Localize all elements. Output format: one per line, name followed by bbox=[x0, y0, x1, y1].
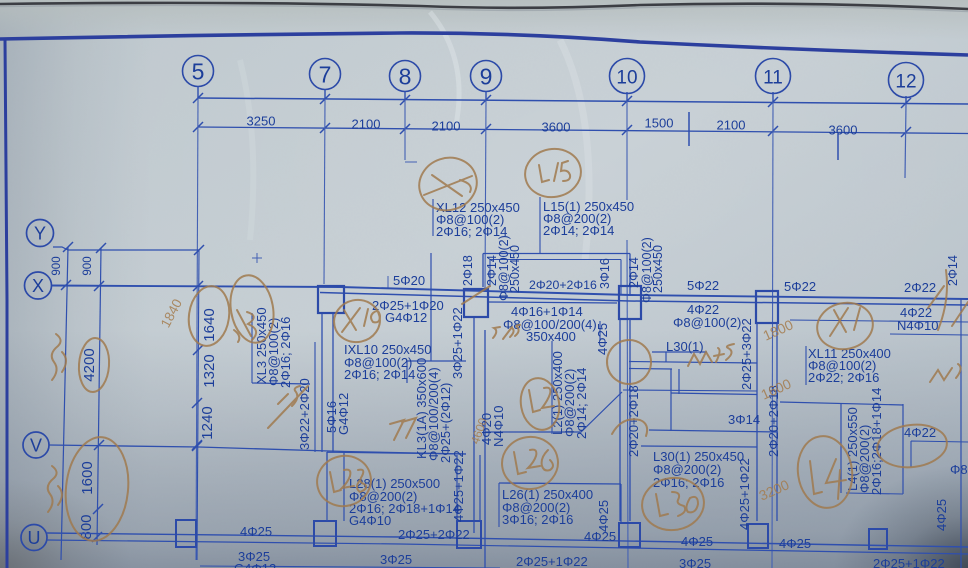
svg-text:2Φ16; 2Φ16: 2Φ16; 2Φ16 bbox=[653, 475, 724, 490]
svg-text:2Φ18: 2Φ18 bbox=[461, 255, 475, 286]
svg-text:L30(1): L30(1) bbox=[666, 339, 704, 354]
svg-text:9: 9 bbox=[480, 64, 493, 90]
svg-text:G4Φ12: G4Φ12 bbox=[336, 393, 351, 435]
svg-text:X: X bbox=[32, 276, 44, 296]
svg-text:3Φ14: 3Φ14 bbox=[728, 412, 760, 427]
svg-text:2100: 2100 bbox=[352, 117, 381, 132]
svg-text:2Φ22: 2Φ22 bbox=[904, 280, 936, 295]
svg-text:2100: 2100 bbox=[717, 118, 746, 133]
svg-text:2Φ16; 2Φ16: 2Φ16; 2Φ16 bbox=[278, 317, 293, 388]
svg-text:2Φ16;2Φ18+1Φ14: 2Φ16;2Φ18+1Φ14 bbox=[869, 388, 884, 495]
svg-text:U: U bbox=[28, 528, 41, 548]
svg-text:10: 10 bbox=[616, 68, 637, 89]
svg-text:2Φ14: 2Φ14 bbox=[946, 255, 960, 286]
svg-text:3250: 3250 bbox=[247, 114, 276, 129]
svg-text:7: 7 bbox=[319, 62, 332, 88]
svg-text:1320: 1320 bbox=[201, 354, 218, 387]
svg-text:3Φ25+1Φ22: 3Φ25+1Φ22 bbox=[450, 307, 465, 379]
svg-text:2Φ25+1Φ22: 2Φ25+1Φ22 bbox=[516, 554, 588, 568]
svg-text:4Φ25: 4Φ25 bbox=[681, 534, 713, 549]
svg-text:1500: 1500 bbox=[645, 116, 674, 131]
svg-text:1600: 1600 bbox=[79, 461, 96, 494]
svg-text:4Φ25: 4Φ25 bbox=[934, 499, 949, 531]
svg-text:3Φ25: 3Φ25 bbox=[380, 552, 412, 567]
svg-text:G4Φ12: G4Φ12 bbox=[234, 561, 276, 568]
svg-text:2Φ16; 2Φ14: 2Φ16; 2Φ14 bbox=[344, 367, 415, 382]
svg-text:G4Φ10: G4Φ10 bbox=[349, 513, 391, 528]
svg-text:2Φ14: 2Φ14 bbox=[627, 257, 641, 288]
svg-text:900: 900 bbox=[82, 256, 94, 275]
svg-text:Y: Y bbox=[34, 224, 46, 244]
svg-text:Φ8@100(2): Φ8@100(2) bbox=[673, 315, 741, 330]
svg-text:4Φ25: 4Φ25 bbox=[240, 524, 272, 539]
svg-text:5Φ22: 5Φ22 bbox=[687, 278, 719, 293]
svg-text:3600: 3600 bbox=[542, 120, 571, 135]
svg-text:4200: 4200 bbox=[81, 348, 98, 381]
svg-text:4Φ25+1Φ22: 4Φ25+1Φ22 bbox=[737, 458, 752, 530]
svg-text:3Φ16; 2Φ16: 3Φ16; 2Φ16 bbox=[502, 512, 573, 527]
svg-text:2Φ25+1Φ22: 2Φ25+1Φ22 bbox=[873, 556, 945, 568]
svg-text:3600: 3600 bbox=[829, 123, 858, 138]
svg-text:Φ8: Φ8 bbox=[950, 462, 968, 477]
svg-text:250x450: 250x450 bbox=[651, 245, 665, 293]
svg-text:N4Φ10: N4Φ10 bbox=[897, 318, 938, 333]
svg-text:5: 5 bbox=[192, 59, 205, 85]
svg-text:3Φ25: 3Φ25 bbox=[679, 556, 711, 568]
svg-text:2Φ25+2Φ22: 2Φ25+2Φ22 bbox=[398, 527, 470, 542]
svg-text:1640: 1640 bbox=[201, 308, 218, 341]
svg-text:2Φ14; 2Φ14: 2Φ14; 2Φ14 bbox=[574, 368, 589, 439]
svg-text:G4Φ12: G4Φ12 bbox=[385, 310, 427, 325]
svg-text:250x450: 250x450 bbox=[508, 245, 522, 293]
svg-text:350x400: 350x400 bbox=[526, 329, 576, 344]
svg-text:1240: 1240 bbox=[199, 406, 216, 439]
svg-text:3Φ16: 3Φ16 bbox=[598, 258, 612, 289]
svg-text:2100: 2100 bbox=[432, 119, 461, 134]
svg-text:4Φ25: 4Φ25 bbox=[779, 536, 811, 551]
svg-text:5Φ22: 5Φ22 bbox=[784, 279, 816, 294]
svg-text:4Φ25: 4Φ25 bbox=[596, 500, 611, 532]
svg-text:4Φ25: 4Φ25 bbox=[595, 323, 610, 355]
svg-text:2Φ22; 2Φ16: 2Φ22; 2Φ16 bbox=[808, 370, 879, 385]
svg-text:4Φ25+1Φ22: 4Φ25+1Φ22 bbox=[451, 450, 466, 522]
svg-text:2Φ20+2Φ16: 2Φ20+2Φ16 bbox=[529, 278, 597, 292]
svg-text:2Φ20+2Φ18: 2Φ20+2Φ18 bbox=[626, 385, 641, 457]
svg-text:2Φ25+3Φ22: 2Φ25+3Φ22 bbox=[739, 318, 754, 390]
svg-text:11: 11 bbox=[763, 68, 783, 89]
svg-text:5Φ20: 5Φ20 bbox=[393, 273, 425, 288]
svg-text:V: V bbox=[30, 436, 42, 456]
svg-text:N4Φ10: N4Φ10 bbox=[491, 406, 506, 447]
svg-text:12: 12 bbox=[895, 72, 916, 93]
svg-text:2Φ14; 2Φ14: 2Φ14; 2Φ14 bbox=[543, 223, 614, 238]
svg-text:8: 8 bbox=[399, 64, 412, 90]
svg-text:900: 900 bbox=[51, 256, 63, 275]
